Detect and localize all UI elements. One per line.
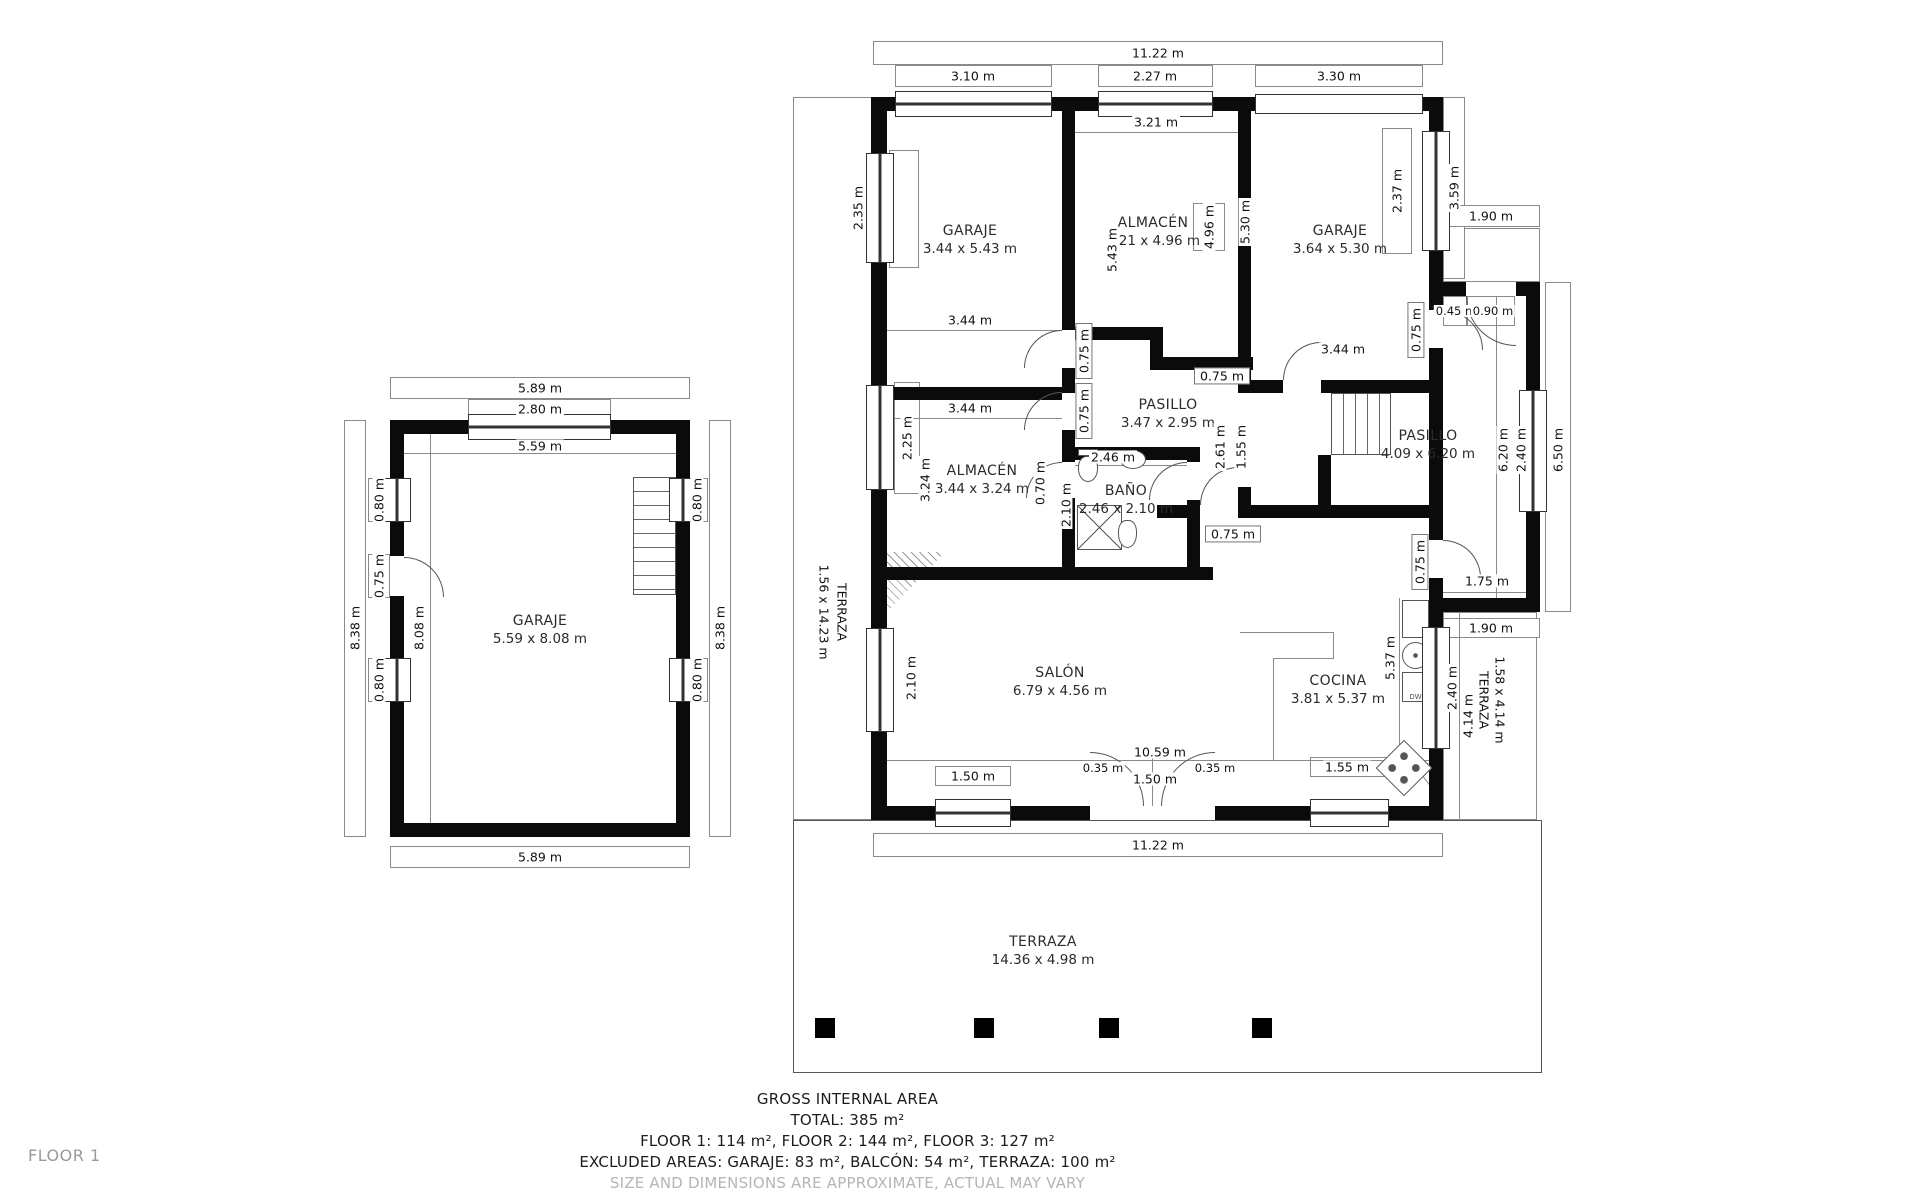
dim-label: 0.90 m <box>1471 305 1515 317</box>
dim-label: 8.38 m <box>348 604 361 652</box>
dim-label: 0.75 m <box>1411 534 1428 590</box>
dim-label: 0.80 m <box>690 656 703 704</box>
dim-label: 0.35 m <box>1081 762 1125 774</box>
dim-label: 11.22 m <box>1130 838 1186 851</box>
dim-label: 2.10 m <box>1059 481 1072 529</box>
door-opening <box>1283 380 1321 393</box>
dim-label: 0.70 m <box>1033 459 1046 507</box>
window <box>935 799 1011 827</box>
garage-door-window <box>468 414 611 440</box>
dim-label: 0.80 m <box>690 476 703 524</box>
dim-label: 5.89 m <box>516 381 564 394</box>
dim-label: 0.35 m <box>1193 762 1237 774</box>
dim-label: 1.75 m <box>1463 574 1511 587</box>
dim-label: 2.46 m <box>1089 450 1137 463</box>
dishwasher-label: DW <box>1409 693 1421 701</box>
door-opening <box>1200 505 1238 518</box>
wall <box>1318 455 1331 518</box>
dim-label: 10.59 m <box>1132 745 1188 758</box>
dim-label: 5.59 m <box>516 439 564 452</box>
area-summary: GROSS INTERNAL AREA TOTAL: 385 m² FLOOR … <box>395 1090 1300 1195</box>
dim-label: 2.40 m <box>1445 664 1458 712</box>
summary-total: TOTAL: 385 m² <box>395 1111 1300 1129</box>
room-label-garaje2: GARAJE 3.64 x 5.30 m <box>1293 223 1387 257</box>
counter-edge <box>1240 632 1334 633</box>
dim-label: 0.80 m <box>372 476 385 524</box>
door-arc <box>1443 540 1481 578</box>
dim-label: 3.10 m <box>949 69 997 82</box>
counter-edge <box>1333 632 1334 658</box>
dim-label: 4.14 m <box>1461 692 1474 740</box>
dim-label: 2.10 m <box>904 654 917 702</box>
summary-excluded: EXCLUDED AREAS: GARAJE: 83 m², BALCÓN: 5… <box>395 1153 1300 1171</box>
dim-line <box>1443 592 1532 593</box>
room-label-almacen2: ALMACÉN 3.44 x 3.24 m <box>935 463 1029 497</box>
room-label-bano: BAÑO 2.46 x 2.10 m <box>1079 483 1173 517</box>
terraza-bottom-outline <box>793 820 1542 1073</box>
dim-label: 0.75 m <box>372 552 385 600</box>
door-opening <box>1429 540 1443 578</box>
room-label-garaje-big: GARAJE 5.59 x 8.08 m <box>493 613 587 647</box>
dim-label: 0.75 m <box>1194 367 1250 384</box>
dim-label: 5.89 m <box>516 850 564 863</box>
dim-label: 5.30 m <box>1238 198 1251 246</box>
terraza-post <box>1099 1018 1119 1038</box>
floor-label: FLOOR 1 <box>28 1146 101 1165</box>
window <box>1310 799 1389 827</box>
room-label-pasillo2: PASILLO 4.09 x 6.20 m <box>1381 428 1475 462</box>
dim-label: 1.50 m <box>949 769 997 782</box>
summary-floors: FLOOR 1: 114 m², FLOOR 2: 144 m², FLOOR … <box>395 1132 1300 1150</box>
dim-label: 3.24 m <box>918 456 931 504</box>
door-opening <box>1062 330 1075 368</box>
dim-label: 5.37 m <box>1383 634 1396 682</box>
dim-label: 4.96 m <box>1202 203 1215 251</box>
room-label-cocina: COCINA 3.81 x 5.37 m <box>1291 673 1385 707</box>
dim-text: 3.44 m <box>1321 341 1365 356</box>
counter-edge <box>1273 658 1274 760</box>
dim-label: 0.80 m <box>372 656 385 704</box>
wall <box>1187 447 1200 462</box>
dim-label: 8.38 m <box>713 604 726 652</box>
wall <box>1443 598 1540 612</box>
dim-label: 0.75 m <box>1075 383 1092 439</box>
door-opening <box>1187 462 1200 500</box>
summary-title: GROSS INTERNAL AREA <box>395 1090 1300 1108</box>
room-label-terraza-left-name: TERRAZA <box>835 581 848 643</box>
dim-label: 3.21 m <box>1132 115 1180 128</box>
summary-disclaimer: SIZE AND DIMENSIONS ARE APPROXIMATE, ACT… <box>395 1174 1300 1192</box>
dim-label: 2.37 m <box>1390 167 1403 215</box>
door-arc <box>1024 330 1062 368</box>
door-arc <box>404 557 444 597</box>
entry-door-opening <box>1466 282 1516 296</box>
room-label-terraza-bottom: TERRAZA 14.36 x 4.98 m <box>992 934 1095 968</box>
counter-edge <box>1399 598 1400 746</box>
window <box>1098 91 1213 117</box>
room-label-almacen1: ALMACÉN 3.21 x 4.96 m <box>1106 215 1200 249</box>
window <box>866 628 894 732</box>
window <box>383 478 411 522</box>
dim-label: 0.75 m <box>1407 302 1424 358</box>
dim-label: 3.59 m <box>1447 164 1460 212</box>
dim-label: 2.27 m <box>1131 69 1179 82</box>
dim-label: 3.44 m <box>946 401 994 414</box>
dim-label: 1.50 m <box>1131 772 1179 785</box>
garage-door-opening <box>1255 94 1423 114</box>
dim-label: 1.55 m <box>1234 423 1247 471</box>
dim-label: 2.35 m <box>851 184 864 232</box>
room-label-pasillo1: PASILLO 3.47 x 2.95 m <box>1121 397 1215 431</box>
door-opening <box>390 556 404 596</box>
dim-label: 11.22 m <box>1130 46 1186 59</box>
room-label-terraza-right-dims: 1.58 x 4.14 m <box>1493 654 1506 745</box>
dim-label: 2.40 m <box>1514 426 1527 474</box>
terraza-post <box>815 1018 835 1038</box>
dim-label: 1.90 m <box>1467 621 1515 634</box>
dim-label: 5.43 m <box>1105 226 1118 274</box>
dim-label: 3.30 m <box>1315 69 1363 82</box>
room-label-terraza-left-dims: 1.56 x 14.23 m <box>817 562 830 661</box>
room-label-salon: SALÓN 6.79 x 4.56 m <box>1013 665 1107 699</box>
room-label-terraza-right-name: TERRAZA <box>1477 669 1490 731</box>
dim-label: 3.44 m <box>946 313 994 326</box>
door-opening <box>1062 393 1075 430</box>
dim-label-garaje2-width: 3.44 m <box>1319 342 1367 355</box>
dim-line <box>1075 132 1238 133</box>
wall <box>873 567 1213 580</box>
dim-label: 2.80 m <box>516 402 564 415</box>
dim-label: 8.08 m <box>412 604 425 652</box>
window <box>866 153 894 263</box>
dim-label: 6.20 m <box>1496 426 1509 474</box>
bidet <box>1118 520 1137 548</box>
dim-label: 1.90 m <box>1467 209 1515 222</box>
door-arc <box>1283 342 1321 380</box>
wall <box>1238 380 1443 393</box>
under-stair-hatch <box>887 552 945 612</box>
dim-label: 0.75 m <box>1205 525 1261 542</box>
garage-door-window <box>895 91 1052 117</box>
window <box>866 385 894 490</box>
dim-line <box>887 330 1062 331</box>
dim-label: 6.50 m <box>1551 426 1564 474</box>
wall <box>1062 97 1075 330</box>
window <box>383 658 411 702</box>
counter-edge <box>1273 658 1334 659</box>
terraza-post <box>1252 1018 1272 1038</box>
wall <box>390 823 690 837</box>
dim-line <box>430 434 431 823</box>
dim-label: 0.75 m <box>1075 323 1092 379</box>
door-arc <box>1200 467 1238 505</box>
dim-label: 2.25 m <box>900 414 913 462</box>
terraza-post <box>974 1018 994 1038</box>
sliding-door-opening <box>1090 806 1215 820</box>
room-label-garaje1: GARAJE 3.44 x 5.43 m <box>923 223 1017 257</box>
floor-plan-canvas: 5.89 m 2.80 m 5.59 m 8.38 m 0.80 m 0.75 … <box>0 0 1920 1199</box>
dim-label: 1.55 m <box>1323 760 1371 773</box>
dim-label: 2.61 m <box>1213 423 1226 471</box>
